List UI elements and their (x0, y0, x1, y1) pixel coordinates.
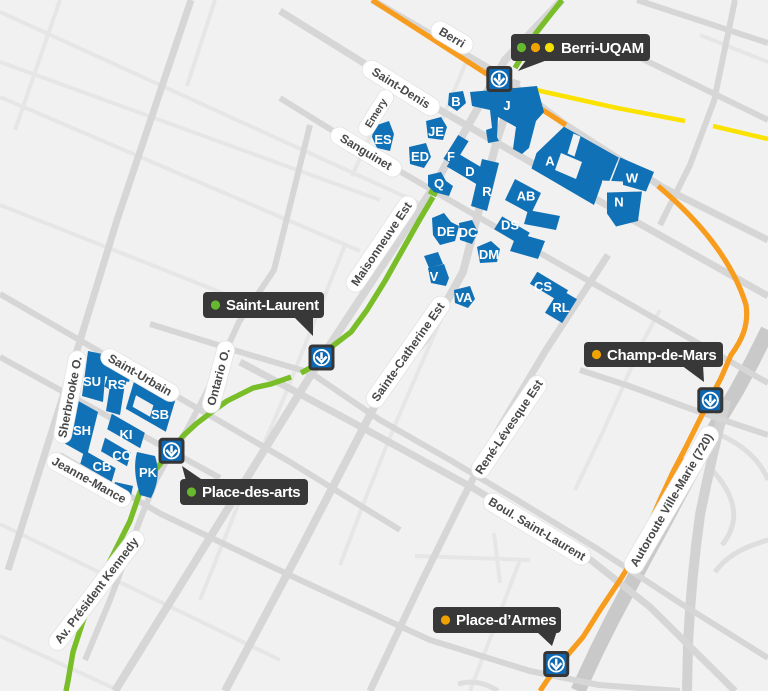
svg-text:CS: CS (534, 279, 552, 294)
svg-text:Q: Q (434, 176, 444, 191)
svg-text:N: N (614, 195, 623, 210)
svg-text:DS: DS (501, 218, 519, 233)
svg-text:RS: RS (108, 377, 126, 392)
svg-text:F: F (447, 149, 455, 164)
svg-text:ES: ES (374, 132, 392, 147)
svg-text:PK: PK (139, 465, 158, 480)
svg-text:B: B (451, 94, 460, 109)
svg-text:JE: JE (428, 124, 444, 139)
svg-text:Champ-de-Mars: Champ-de-Mars (607, 347, 716, 364)
svg-text:KI: KI (120, 427, 133, 442)
svg-text:Place-d’Armes: Place-d’Armes (456, 612, 556, 629)
svg-text:SU: SU (83, 374, 101, 389)
svg-text:ED: ED (411, 149, 429, 164)
svg-text:CB: CB (93, 459, 112, 474)
svg-text:J: J (503, 98, 510, 113)
svg-text:CO: CO (112, 448, 132, 463)
svg-text:A: A (545, 154, 555, 169)
svg-text:VA: VA (455, 290, 473, 305)
svg-text:Berri-UQAM: Berri-UQAM (561, 40, 644, 57)
svg-text:W: W (626, 171, 639, 186)
svg-text:Saint-Laurent: Saint-Laurent (226, 297, 319, 314)
svg-text:DC: DC (459, 225, 478, 240)
svg-text:V: V (430, 269, 439, 284)
svg-text:SH: SH (73, 423, 91, 438)
svg-text:DE: DE (437, 224, 455, 239)
svg-text:DM: DM (479, 247, 499, 262)
svg-text:RL: RL (552, 300, 569, 315)
svg-text:SB: SB (151, 407, 169, 422)
svg-text:AB: AB (517, 189, 536, 204)
svg-text:Place-des-arts: Place-des-arts (202, 484, 300, 501)
svg-text:R: R (482, 184, 492, 199)
svg-text:D: D (465, 164, 474, 179)
